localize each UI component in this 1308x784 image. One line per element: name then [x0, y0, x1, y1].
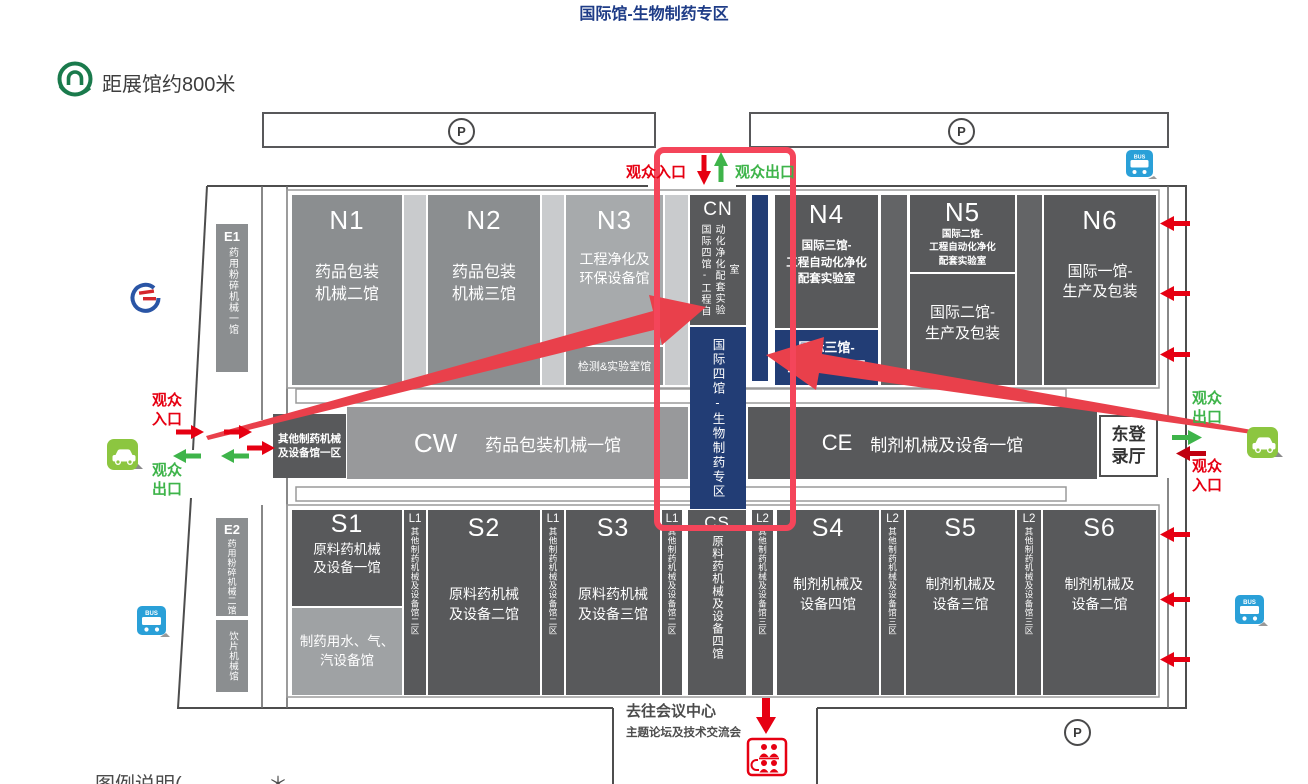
metro-logo-icon — [54, 60, 98, 106]
bus-stop-icon: BUS — [136, 605, 170, 639]
hall-name: 药品包装机械一馆 — [485, 431, 621, 456]
west-visitor-entrance-label: 观众入口 — [150, 392, 184, 430]
entrance-down-arrow-icon — [697, 155, 711, 185]
conference-down-arrow-icon — [756, 698, 776, 734]
bus-stop-icon: BUS — [1234, 594, 1268, 628]
hall-code: N2 — [466, 205, 501, 236]
parking-badge: P — [1064, 719, 1091, 746]
east-registration-hall: 东登 录厅 — [1099, 415, 1158, 477]
aisle — [1017, 195, 1042, 385]
hall-name: 其他制药机械及设备馆三区 — [1023, 527, 1035, 635]
hall-code: N1 — [329, 205, 364, 236]
hall-code: N3 — [597, 205, 632, 236]
hall-name: 其他制药机械及设备馆二区 — [547, 527, 559, 635]
parking-badge: P — [448, 118, 475, 145]
top-visitor-entrance-label: 观众入口 — [626, 161, 686, 182]
hall-name: 其他制药机械及设备馆三区 — [757, 527, 769, 635]
hall-n5: N5 国际二馆- 工程自动化净化 配套实验室 国际二馆- 生产及包装 — [910, 195, 1015, 385]
aisle — [542, 195, 564, 385]
hall-code: L1 — [547, 513, 560, 525]
hall-n3-lab: 检测&实验室馆 — [566, 347, 663, 385]
hall-name: 工程净化及 环保设备馆 — [580, 250, 650, 288]
metro-distance-note: 距展馆约800米 — [102, 68, 235, 97]
svg-text:BUS: BUS — [1134, 155, 1146, 161]
hall-code: S6 — [1083, 514, 1116, 543]
conference-people-icon — [746, 737, 788, 777]
hall-code: E1 — [224, 229, 240, 244]
hall-name: 国际三馆- 生物制药专区 — [787, 339, 865, 375]
taxi-icon — [106, 438, 144, 472]
hall-other-zone1: 其他制药机械 及设备馆一区 — [273, 414, 346, 478]
hall-name: 药品包装 机械二馆 — [315, 262, 379, 305]
hall-name: 制剂机械及 设备二馆 — [1065, 575, 1135, 614]
flow-left-arrow-icon — [1160, 347, 1190, 362]
hall-s3: S3 原料药机械 及设备三馆 — [566, 510, 660, 695]
hall-code: N6 — [1082, 205, 1117, 236]
parking-badge: P — [948, 118, 975, 145]
hall-code: S5 — [944, 514, 977, 543]
hall-name: 制剂机械及设备一馆 — [870, 431, 1023, 456]
hall-name: 制剂机械及 设备四馆 — [793, 575, 863, 614]
flow-left-arrow-icon — [1160, 527, 1190, 542]
rail-logo-icon — [124, 277, 162, 315]
flow-left-arrow-icon — [1160, 592, 1190, 607]
east-visitor-exit-label: 观众出口 — [1190, 390, 1224, 428]
hall-cw: CW 药品包装机械一馆 — [347, 407, 688, 479]
hall-name: 饮片机械馆 — [225, 631, 239, 681]
hall-name: 国际二馆- 工程自动化净化 配套实验室 — [910, 228, 1015, 268]
hall-s5: S5 制剂机械及 设备三馆 — [906, 510, 1015, 695]
hall-l2-column: L2 其他制药机械及设备馆三区 — [1017, 510, 1041, 695]
hall-name: 原料药机械及设备四馆 — [709, 535, 725, 660]
hall-s1: S1 原料药机械 及设备一馆 — [292, 510, 402, 606]
aisle — [404, 195, 426, 385]
hall-e1: E1 药用粉碎机械一馆 — [216, 224, 248, 372]
hall-name: 制药用水、气、 汽设备馆 — [300, 633, 395, 671]
hall-name: 药品包装 机械三馆 — [452, 262, 516, 305]
hall-l1-column: L1 其他制药机械及设备馆二区 — [542, 510, 564, 695]
hall-n3: N3 工程净化及 环保设备馆 — [566, 195, 663, 345]
hall-name: 原料药机械 及设备一馆 — [313, 541, 381, 577]
entrance-right-arrow-icon — [176, 425, 204, 439]
hall-code: N5 — [910, 197, 1015, 228]
hall-cs: CS 原料药机械及设备四馆 — [688, 510, 746, 695]
biopharma-zone-highlight — [654, 147, 796, 531]
hall-s2: S2 原料药机械 及设备二馆 — [428, 510, 540, 695]
exit-right-arrow-icon — [1172, 430, 1202, 445]
hall-name: 其他制药机械及设备馆二区 — [666, 527, 678, 635]
hall-code: CE — [822, 430, 853, 456]
hall-l2-column: L2 其他制药机械及设备馆三区 — [752, 510, 773, 695]
flow-left-arrow-icon — [1160, 286, 1190, 301]
flow-left-arrow-icon — [1160, 652, 1190, 667]
hall-code: S4 — [812, 514, 845, 543]
hall-l2-column: L2 其他制药机械及设备馆三区 — [881, 510, 904, 695]
hall-l1-column: L1 其他制药机械及设备馆二区 — [662, 510, 682, 695]
hall-name: 制剂机械及 设备三馆 — [926, 575, 996, 614]
hall-code: S3 — [597, 514, 630, 543]
hall-e2: E2 药用粉碎机械二馆 — [216, 518, 248, 616]
hall-n6: N6 国际一馆- 生产及包装 — [1044, 195, 1156, 385]
hall-code: L2 — [1023, 513, 1036, 525]
hall-s6: S6 制剂机械及 设备二馆 — [1043, 510, 1156, 695]
hall-code: L1 — [409, 513, 422, 525]
hall-code: E2 — [224, 522, 240, 537]
top-visitor-exit-label: 观众出口 — [735, 161, 795, 182]
hall-name: 原料药机械 及设备三馆 — [578, 585, 648, 624]
entrance-right-arrow-icon — [224, 425, 252, 439]
hall-code: L2 — [886, 513, 899, 525]
west-visitor-exit-label: 观众出口 — [150, 462, 184, 500]
hall-name: 其他制药机械及设备馆二区 — [409, 527, 421, 635]
conference-center-label: 去往会议中心 — [626, 700, 716, 721]
hall-name: 药用粉碎机械二馆 — [226, 539, 239, 615]
hall-code: CW — [414, 428, 457, 459]
legend-label: 图例说明( — [95, 768, 182, 784]
entrance-right-arrow-icon — [247, 441, 275, 455]
hall-n2: N2 药品包装 机械三馆 — [428, 195, 540, 385]
hall-s4: S4 制剂机械及 设备四馆 — [777, 510, 879, 695]
hall-code: N4 — [809, 199, 844, 230]
legend-fragment: ＊ — [268, 768, 288, 784]
hall-name: 检测&实验室馆 — [578, 358, 651, 374]
hall-l1-column: L1 其他制药机械及设备馆二区 — [404, 510, 426, 695]
hall-s1-water-gas: 制药用水、气、 汽设备馆 — [292, 608, 402, 695]
hall-name: 国际三馆- 工程自动化净化 配套实验室 — [786, 238, 867, 288]
exit-up-arrow-icon — [714, 152, 728, 182]
hall-n1: N1 药品包装 机械二馆 — [292, 195, 402, 385]
exit-left-arrow-icon — [173, 449, 201, 463]
expo-floor-map: 国际馆-生物制药专区 距展馆约800米 P P — [0, 0, 1308, 784]
hall-name: 国际一馆- 生产及包装 — [1062, 262, 1137, 303]
svg-text:BUS: BUS — [1243, 600, 1256, 606]
east-visitor-entrance-label: 观众入口 — [1190, 458, 1224, 496]
page-title: 国际馆-生物制药专区 — [0, 0, 1308, 24]
exit-left-arrow-icon — [221, 449, 249, 463]
hall-name: 原料药机械 及设备二馆 — [449, 585, 519, 624]
conference-forum-label: 主题论坛及技术交流会 — [626, 724, 741, 740]
hall-name: 东登 录厅 — [1112, 424, 1146, 468]
hall-ce: CE 制剂机械及设备一馆 — [748, 407, 1097, 479]
bus-stop-icon: BUS — [1125, 149, 1157, 181]
flow-left-arrow-icon — [1160, 216, 1190, 231]
hall-e2-lower: 饮片机械馆 — [216, 620, 248, 692]
taxi-icon — [1246, 426, 1284, 460]
hall-name: 药用粉碎机械一馆 — [225, 247, 240, 335]
svg-text:BUS: BUS — [145, 611, 158, 617]
hall-name: 其他制药机械及设备馆三区 — [887, 527, 899, 635]
hall-code: S2 — [468, 514, 501, 543]
hall-name: 国际二馆- 生产及包装 — [925, 302, 1000, 344]
hall-name: 其他制药机械 及设备馆一区 — [278, 432, 341, 460]
aisle — [881, 195, 907, 385]
hall-code: S1 — [331, 510, 364, 539]
